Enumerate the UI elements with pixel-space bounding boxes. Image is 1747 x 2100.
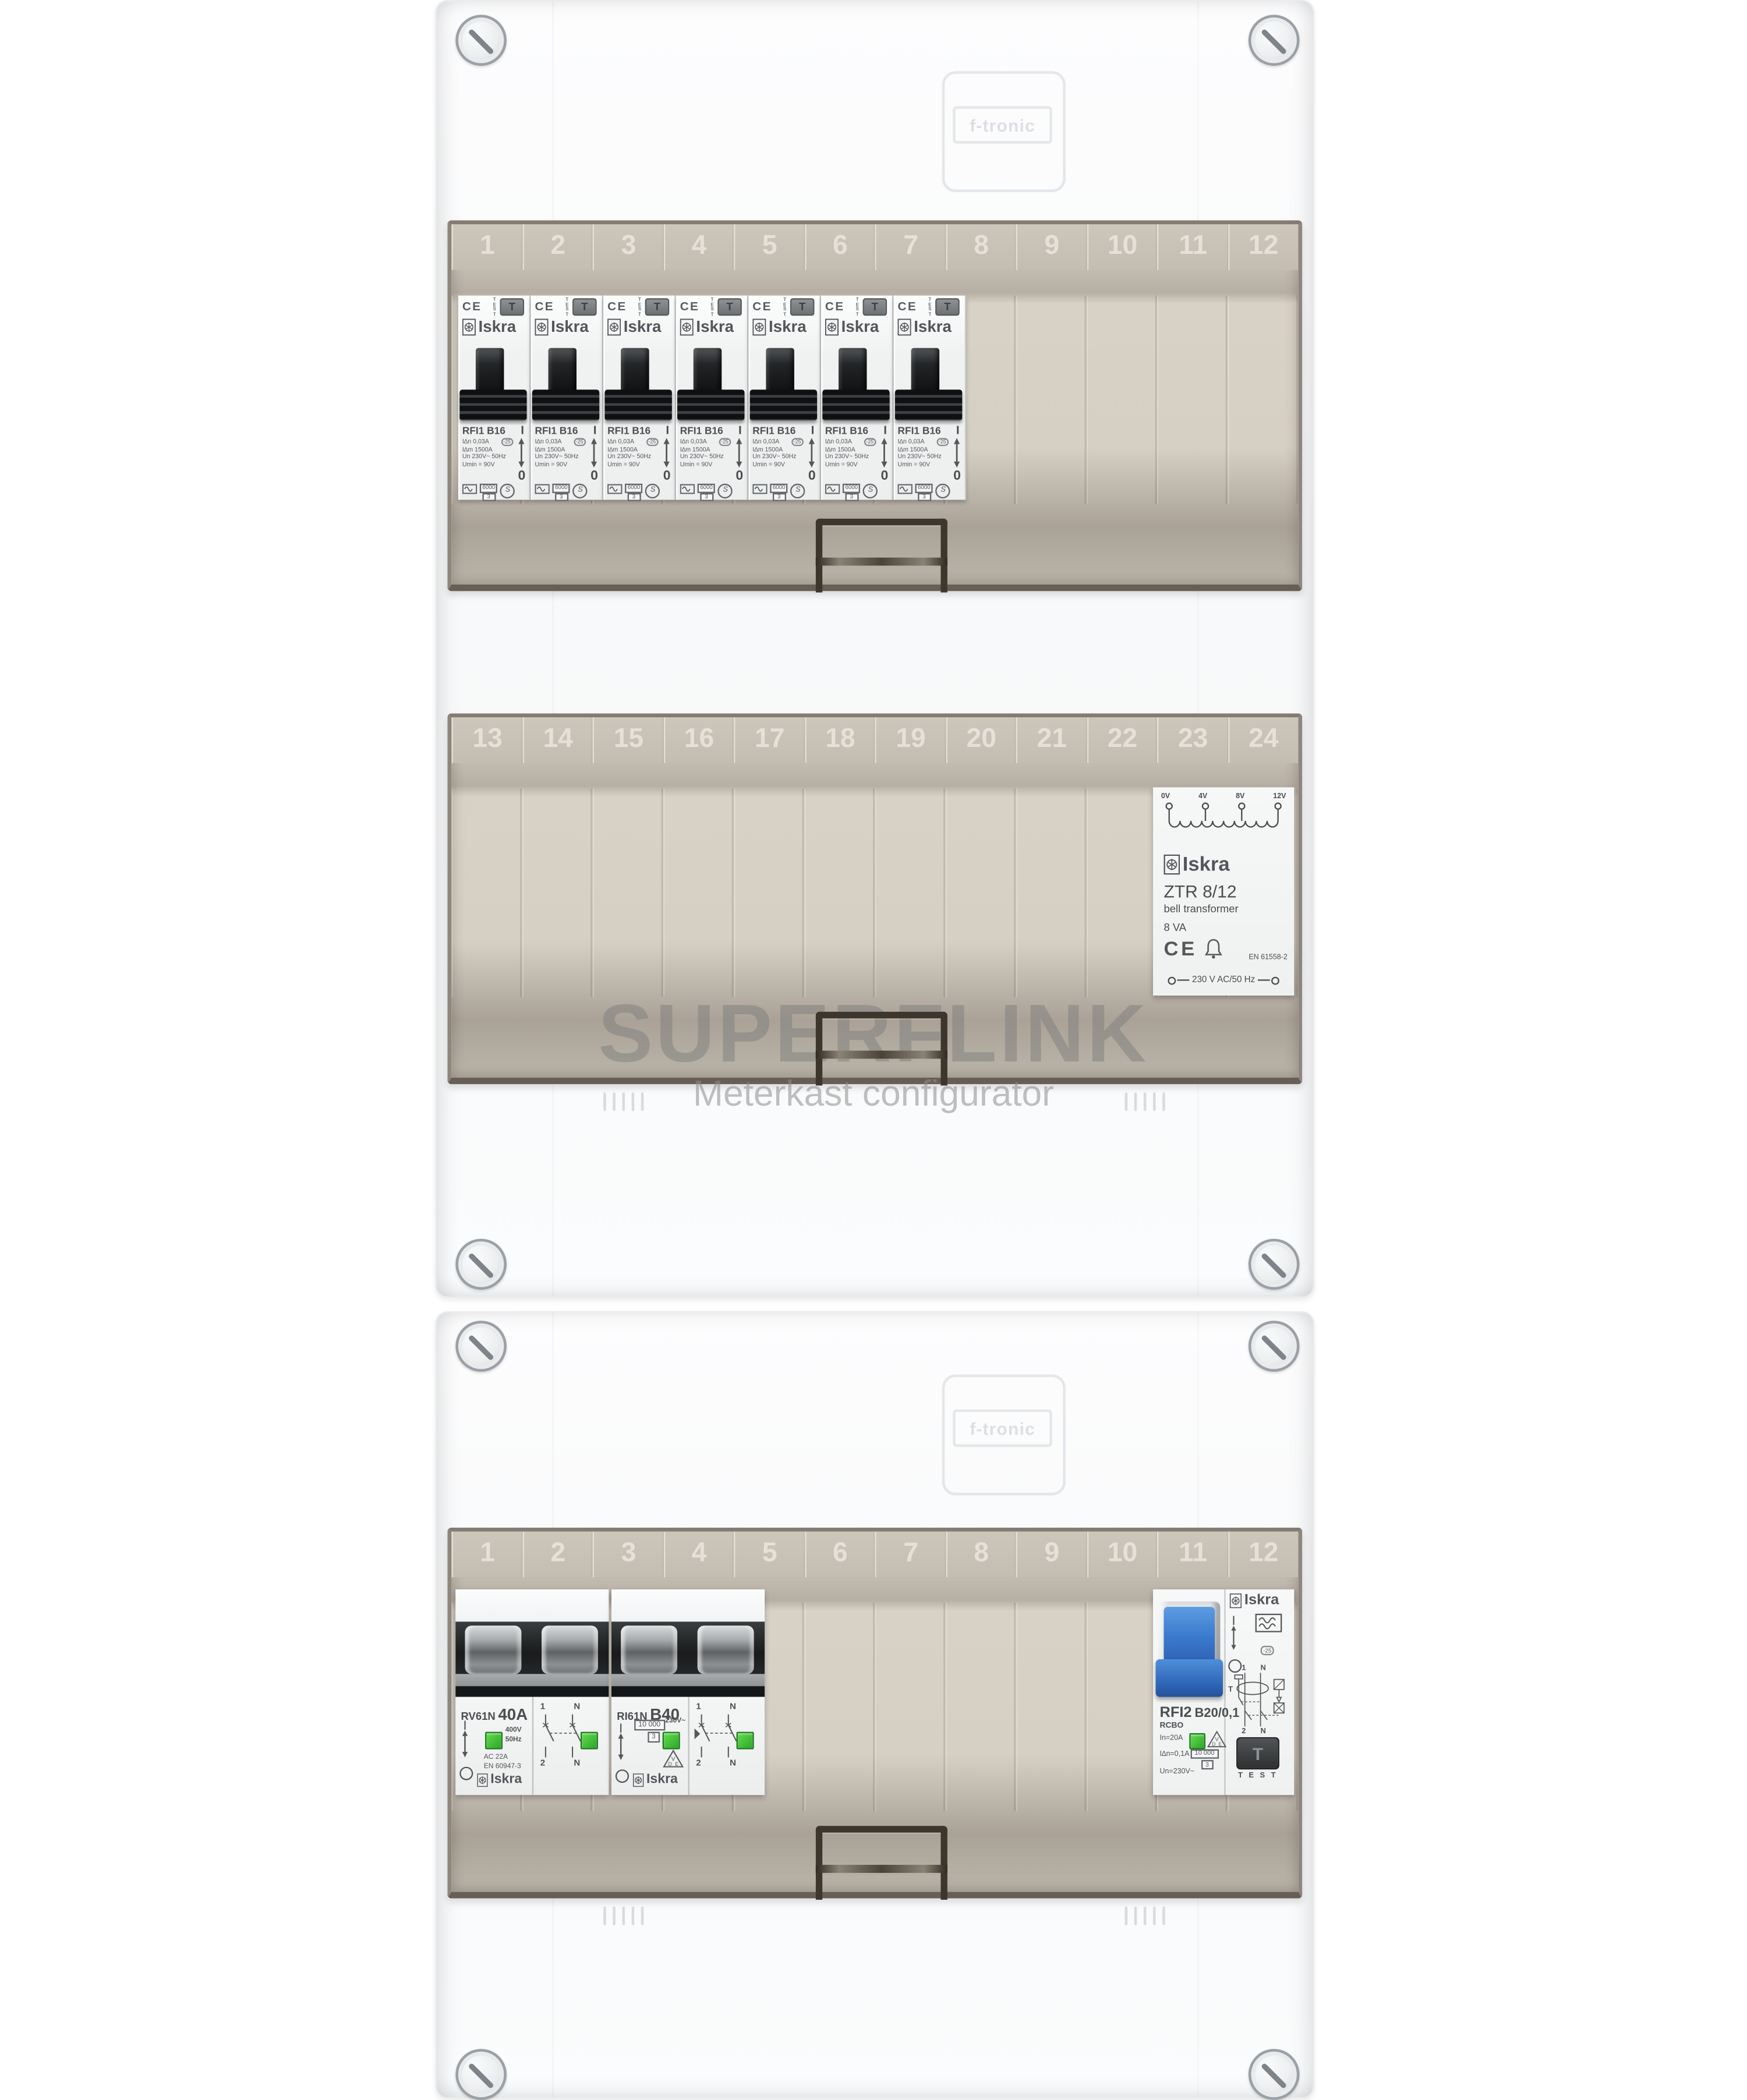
slot-number: 10 [1087, 224, 1157, 270]
ftronic-embossed-logo: f-tronic [942, 71, 1066, 192]
slot-number: 11 [1157, 224, 1228, 270]
bell-transformer-module[interactable]: 0V4V8V12V Iskra ZTR 8/12 bell transforme… [1153, 787, 1294, 996]
screw-icon [455, 1320, 507, 1372]
status-indicator-green [737, 1732, 754, 1750]
temperature-badge: -25 [573, 438, 586, 446]
slot-number: 3 [593, 224, 663, 270]
breaker-toggle[interactable] [549, 348, 577, 394]
on-marker: I [593, 423, 597, 437]
vent-slots [603, 1907, 643, 1925]
slot-number: 13 [451, 717, 522, 763]
transformer-model: ZTR 8/12 [1164, 881, 1236, 902]
slot-number: 18 [804, 717, 875, 763]
off-marker: 0 [663, 469, 671, 483]
ftronic-embossed-logo: f-tronic [942, 1375, 1066, 1496]
breaker-toggle[interactable] [621, 348, 649, 394]
latch-clip[interactable] [816, 1012, 947, 1086]
off-marker [1228, 1659, 1242, 1673]
breaking-capacity-badge: 6000 3 [915, 484, 933, 502]
slot-number: 7 [875, 1532, 945, 1577]
device-rating: B20/0,1 [1195, 1706, 1240, 1721]
slot-number: 1 [451, 224, 522, 270]
sine-icon [462, 484, 477, 494]
breaker-toggle[interactable] [476, 348, 504, 394]
iskra-emblem-icon [607, 318, 621, 336]
breaker-toggle[interactable] [766, 348, 794, 394]
on-marker: | [1228, 1616, 1239, 1626]
updown-arrow-icon [617, 1733, 625, 1760]
breaker-toggle-base[interactable] [750, 389, 817, 420]
s-mark-icon: S [500, 484, 515, 498]
screw-icon [455, 1239, 507, 1290]
slot-number: 20 [945, 717, 1016, 763]
latch-clip[interactable] [816, 1826, 947, 1900]
rcd-breaker-group: CE TEST T Iskra RFI1 B16 I∆n 0,03A I∆m 1… [458, 296, 966, 500]
breaking-capacity-badge: 6000 3 [480, 484, 498, 502]
breaker-toggle-base[interactable] [895, 389, 962, 420]
sine-icon [607, 484, 622, 494]
mcb-device[interactable]: RI61NB40 | 10 000 3 230V~ V D E [611, 1589, 765, 1795]
din-rail-window-row3: 123456789101112 RV61N40A | [447, 1528, 1302, 1899]
transformer-description: bell transformer [1164, 903, 1238, 915]
on-marker: | [616, 1724, 626, 1733]
slot-number: 10 [1087, 1532, 1157, 1577]
breaking-capacity-badge: 6000 3 [698, 484, 716, 502]
rated-current: In=20A [1160, 1734, 1183, 1743]
off-marker: 0 [518, 469, 525, 483]
temperature-badge: -25 [718, 438, 731, 446]
iskra-logo: Iskra [680, 318, 734, 336]
test-button[interactable]: T [790, 298, 815, 316]
rcd-breaker-module[interactable]: CE TEST T Iskra RFI1 B16 I∆n 0,03A I∆m 1… [821, 296, 894, 500]
s-mark-icon: S [863, 484, 878, 498]
din-rail-window-row1: 123456789101112 CE TEST T Iskra [447, 220, 1302, 591]
slot-number: 12 [1228, 1532, 1298, 1577]
meterkast-panel-image: f-tronic 123456789101112 CE TEST T Iskra [0, 0, 1747, 2096]
rcd-breaker-module[interactable]: CE TEST T Iskra RFI1 B16 I∆n 0,03A I∆m 1… [748, 296, 821, 500]
rcbo-test-button[interactable]: T [1236, 1737, 1279, 1769]
breaker-model: RFI1 B16 [898, 424, 941, 437]
s-mark-icon: S [936, 484, 950, 498]
temperature-badge: -25 [864, 438, 876, 446]
iskra-logo: Iskra [898, 318, 952, 336]
breaker-model: RFI1 B16 [680, 424, 723, 437]
iskra-logo: Iskra [477, 1773, 522, 1787]
ce-mark: CE [752, 300, 772, 313]
device-model: RFI2 [1160, 1705, 1192, 1721]
status-indicator-green [581, 1732, 598, 1750]
slot-number: 5 [734, 224, 804, 270]
rcd-breaker-module[interactable]: CE TEST T Iskra RFI1 B16 I∆n 0,03A I∆m 1… [676, 296, 749, 500]
ce-mark: CE [1164, 938, 1197, 961]
screw-icon [455, 15, 507, 66]
latch-clip[interactable] [816, 519, 947, 593]
winding-symbol-icon [1161, 802, 1286, 837]
breaker-toggle[interactable] [911, 348, 939, 394]
rcd-breaker-module[interactable]: CE TEST T Iskra RFI1 B16 I∆n 0,03A I∆m 1… [458, 296, 531, 500]
slot-number: 11 [1157, 1532, 1228, 1577]
slot-number-strip: 131415161718192021222324 [451, 717, 1298, 763]
test-button[interactable]: T [572, 298, 597, 316]
temperature-badge: -25 [1261, 1646, 1274, 1655]
iskra-emblem-icon [680, 318, 694, 336]
vent-slots [1125, 1907, 1165, 1925]
updown-arrow-icon [1230, 1626, 1238, 1650]
on-marker: I [521, 423, 524, 437]
breaker-model: RFI1 B16 [535, 424, 578, 437]
breaking-capacity-badge: 6000 3 [625, 484, 643, 502]
breaker-toggle-base[interactable] [822, 389, 889, 420]
breaking-capacity-badge: 10 000 [634, 1720, 664, 1730]
iskra-emblem-icon [535, 318, 548, 336]
slot-number: 1 [451, 1532, 522, 1577]
slot-number: 15 [593, 717, 663, 763]
svg-text:E: E [675, 1761, 678, 1767]
breaker-toggle-base[interactable] [459, 389, 526, 420]
switch-toggle-recess [455, 1621, 609, 1674]
sine-icon [825, 484, 840, 494]
slot-number: 8 [945, 1532, 1016, 1577]
slot-number: 5 [734, 1532, 804, 1577]
breaker-toggle-base[interactable] [604, 389, 671, 420]
slot-number: 17 [734, 717, 804, 763]
on-marker: I [666, 423, 669, 437]
breaker-toggle-base[interactable] [677, 389, 744, 420]
breaker-model: RFI1 B16 [752, 424, 795, 437]
rcbo-circuit-icon [1233, 1673, 1287, 1726]
sine-icon [752, 484, 767, 494]
off-marker: 0 [590, 469, 598, 483]
iskra-logo: Iskra [1230, 1593, 1279, 1608]
s-mark-icon: S [645, 484, 660, 498]
rated-voltage: Un=230V~ [1160, 1768, 1194, 1776]
enclosure-unit-bottom: f-tronic 123456789101112 RV61N40A [436, 1311, 1314, 2098]
rcd-breaker-module[interactable]: CE TEST T Iskra RFI1 B16 I∆n 0,03A I∆m 1… [894, 296, 967, 500]
slot-number: 4 [663, 224, 734, 270]
slot-number: 2 [522, 224, 593, 270]
on-marker: | [459, 1721, 470, 1730]
temperature-badge: -25 [646, 438, 659, 446]
slot-number: 16 [663, 717, 734, 763]
slot-number: 9 [1016, 224, 1087, 270]
ce-mark: CE [680, 300, 699, 313]
sine-icon [898, 484, 913, 494]
slot-number: 6 [804, 224, 875, 270]
slot-number-strip: 123456789101112 [451, 1532, 1298, 1577]
slot-number: 12 [1228, 224, 1298, 270]
iskra-emblem-icon [898, 318, 911, 336]
status-indicator-green [1189, 1733, 1205, 1750]
ce-mark: CE [825, 300, 844, 313]
rcbo-blue-toggle[interactable] [1164, 1607, 1215, 1663]
test-vertical-label: TEST [492, 298, 497, 317]
test-vertical-label: TEST [855, 298, 860, 317]
breaker-toggle[interactable] [839, 348, 867, 394]
screw-icon [1249, 2049, 1300, 2100]
on-marker: I [811, 423, 815, 437]
s-mark-icon: S [573, 484, 588, 498]
off-marker: 0 [881, 469, 889, 483]
transformer-standard: EN 61558-2 [1249, 954, 1287, 962]
iskra-logo: Iskra [535, 318, 588, 336]
iskra-emblem-icon [752, 318, 766, 336]
iskra-emblem-icon [462, 318, 476, 336]
svg-text:E: E [1218, 1741, 1222, 1747]
s-mark-icon: S [718, 484, 733, 498]
breaking-capacity-badge: 6000 3 [552, 484, 570, 502]
switch-toggle[interactable] [465, 1626, 521, 1674]
temperature-badge: -25 [936, 438, 949, 446]
surge-sine-icon [1255, 1614, 1282, 1632]
vde-triangle-icon: V D E [1207, 1730, 1227, 1748]
ce-mark: CE [607, 300, 627, 313]
status-indicator-green [485, 1732, 503, 1750]
test-vertical-label: TEST [709, 298, 715, 317]
ce-mark: CE [535, 300, 554, 313]
svg-text:D: D [668, 1761, 671, 1767]
test-vertical-label: TEST [637, 298, 642, 317]
on-marker: I [883, 423, 887, 437]
ce-mark: CE [898, 300, 917, 313]
breaker-toggle-base[interactable] [532, 389, 599, 420]
slot-number: 4 [663, 1532, 734, 1577]
test-button[interactable]: T [717, 298, 742, 316]
energy-class-badge: 3 [648, 1732, 659, 1743]
switch-toggle[interactable] [542, 1626, 598, 1674]
switch-toggle[interactable] [698, 1626, 754, 1674]
transformer-supply: 230 V AC/50 Hz [1153, 975, 1294, 985]
rcd-breaker-module[interactable]: CE TEST T Iskra RFI1 B16 I∆n 0,03A I∆m 1… [531, 296, 604, 500]
iskra-logo: Iskra [752, 318, 806, 336]
screw-icon [455, 2049, 507, 2100]
test-label: T E S T [1228, 1772, 1288, 1780]
switch-toggle-recess [611, 1621, 765, 1674]
breaking-capacity-badge: 10 000 [1191, 1750, 1219, 1759]
off-marker [459, 1767, 473, 1780]
iskra-logo: Iskra [462, 318, 516, 336]
iskra-emblem-icon [1230, 1593, 1242, 1608]
test-vertical-label: TEST [564, 298, 570, 317]
breaking-capacity-badge: 6000 3 [770, 484, 788, 502]
iskra-emblem-icon [477, 1773, 487, 1787]
iskra-emblem-icon [825, 318, 839, 336]
off-marker: 0 [735, 469, 743, 483]
slot-number: 6 [804, 1532, 875, 1577]
iskra-logo: Iskra [607, 318, 661, 336]
slot-number: 21 [1016, 717, 1087, 763]
breaker-model: RFI1 B16 [607, 424, 650, 437]
screw-icon [1249, 15, 1300, 66]
breaker-model: RFI1 B16 [825, 424, 868, 437]
screw-icon [1249, 1239, 1300, 1290]
breaker-model: RFI1 B16 [462, 424, 505, 437]
off-marker [616, 1769, 629, 1783]
slot-number: 19 [875, 717, 945, 763]
iskra-emblem-icon [633, 1773, 643, 1787]
screw-icon [1249, 1320, 1300, 1372]
rcd-breaker-module[interactable]: CE TEST T Iskra RFI1 B16 I∆n 0,03A I∆m 1… [603, 296, 676, 500]
slot-number: 22 [1087, 717, 1157, 763]
slot-number: 8 [945, 224, 1016, 270]
slot-number: 24 [1228, 717, 1298, 763]
test-button[interactable]: T [645, 298, 670, 316]
slot-number: 14 [522, 717, 593, 763]
rcbo-device[interactable]: Iskra RFI2 B20/0,1 RCBO In=20A V D E I∆n… [1153, 1589, 1294, 1795]
ce-mark: CE [462, 300, 482, 313]
temperature-badge: -25 [501, 438, 514, 446]
switch-toggle[interactable] [621, 1626, 677, 1674]
slot-number: 7 [875, 224, 945, 270]
status-indicator-green [663, 1732, 680, 1750]
iskra-logo: Iskra [633, 1773, 678, 1787]
device-type: RCBO [1160, 1722, 1184, 1730]
slot-number: 2 [522, 1532, 593, 1577]
on-marker: I [738, 423, 742, 437]
rcbo-blue-toggle-flap[interactable] [1156, 1659, 1223, 1697]
main-switch-device[interactable]: RV61N40A | 400V50Hz AC 22AEN 60947-3 Isk… [455, 1589, 609, 1795]
switch-circuit-icon [537, 1715, 583, 1758]
sine-icon [535, 484, 549, 494]
test-vertical-label: TEST [782, 298, 787, 317]
breaking-capacity-badge: 6000 3 [843, 484, 861, 502]
temperature-badge: -25 [791, 438, 804, 446]
test-vertical-label: TEST [927, 298, 932, 317]
off-marker: 0 [953, 469, 961, 483]
energy-class-badge: 3 [1201, 1760, 1213, 1769]
slot-number: 9 [1016, 1532, 1087, 1577]
breaker-toggle[interactable] [694, 348, 722, 394]
svg-text:D: D [1212, 1741, 1216, 1747]
iskra-logo: Iskra [1164, 855, 1229, 875]
breaker-circuit-icon [694, 1715, 739, 1758]
device-rating: 40A [498, 1705, 528, 1723]
test-button[interactable]: T [935, 298, 960, 316]
off-marker: 0 [808, 469, 816, 483]
slot-number-strip: 123456789101112 [451, 224, 1298, 270]
bell-icon [1204, 938, 1223, 959]
iskra-logo: Iskra [825, 318, 879, 336]
vde-triangle-icon: V D E [663, 1750, 684, 1768]
residual-current: I∆n=0,1A [1160, 1751, 1190, 1759]
sine-icon [680, 484, 695, 494]
transformer-power: 8 VA [1164, 922, 1186, 934]
test-button[interactable]: T [863, 298, 887, 316]
iskra-emblem-icon [1164, 855, 1180, 875]
updown-arrow-icon [461, 1730, 469, 1757]
test-button[interactable]: T [500, 298, 524, 316]
on-marker: I [956, 423, 960, 437]
s-mark-icon: S [791, 484, 805, 498]
slot-number: 23 [1157, 717, 1228, 763]
slot-number: 3 [593, 1532, 663, 1577]
transformer-tap-labels: 0V4V8V12V [1161, 793, 1286, 801]
